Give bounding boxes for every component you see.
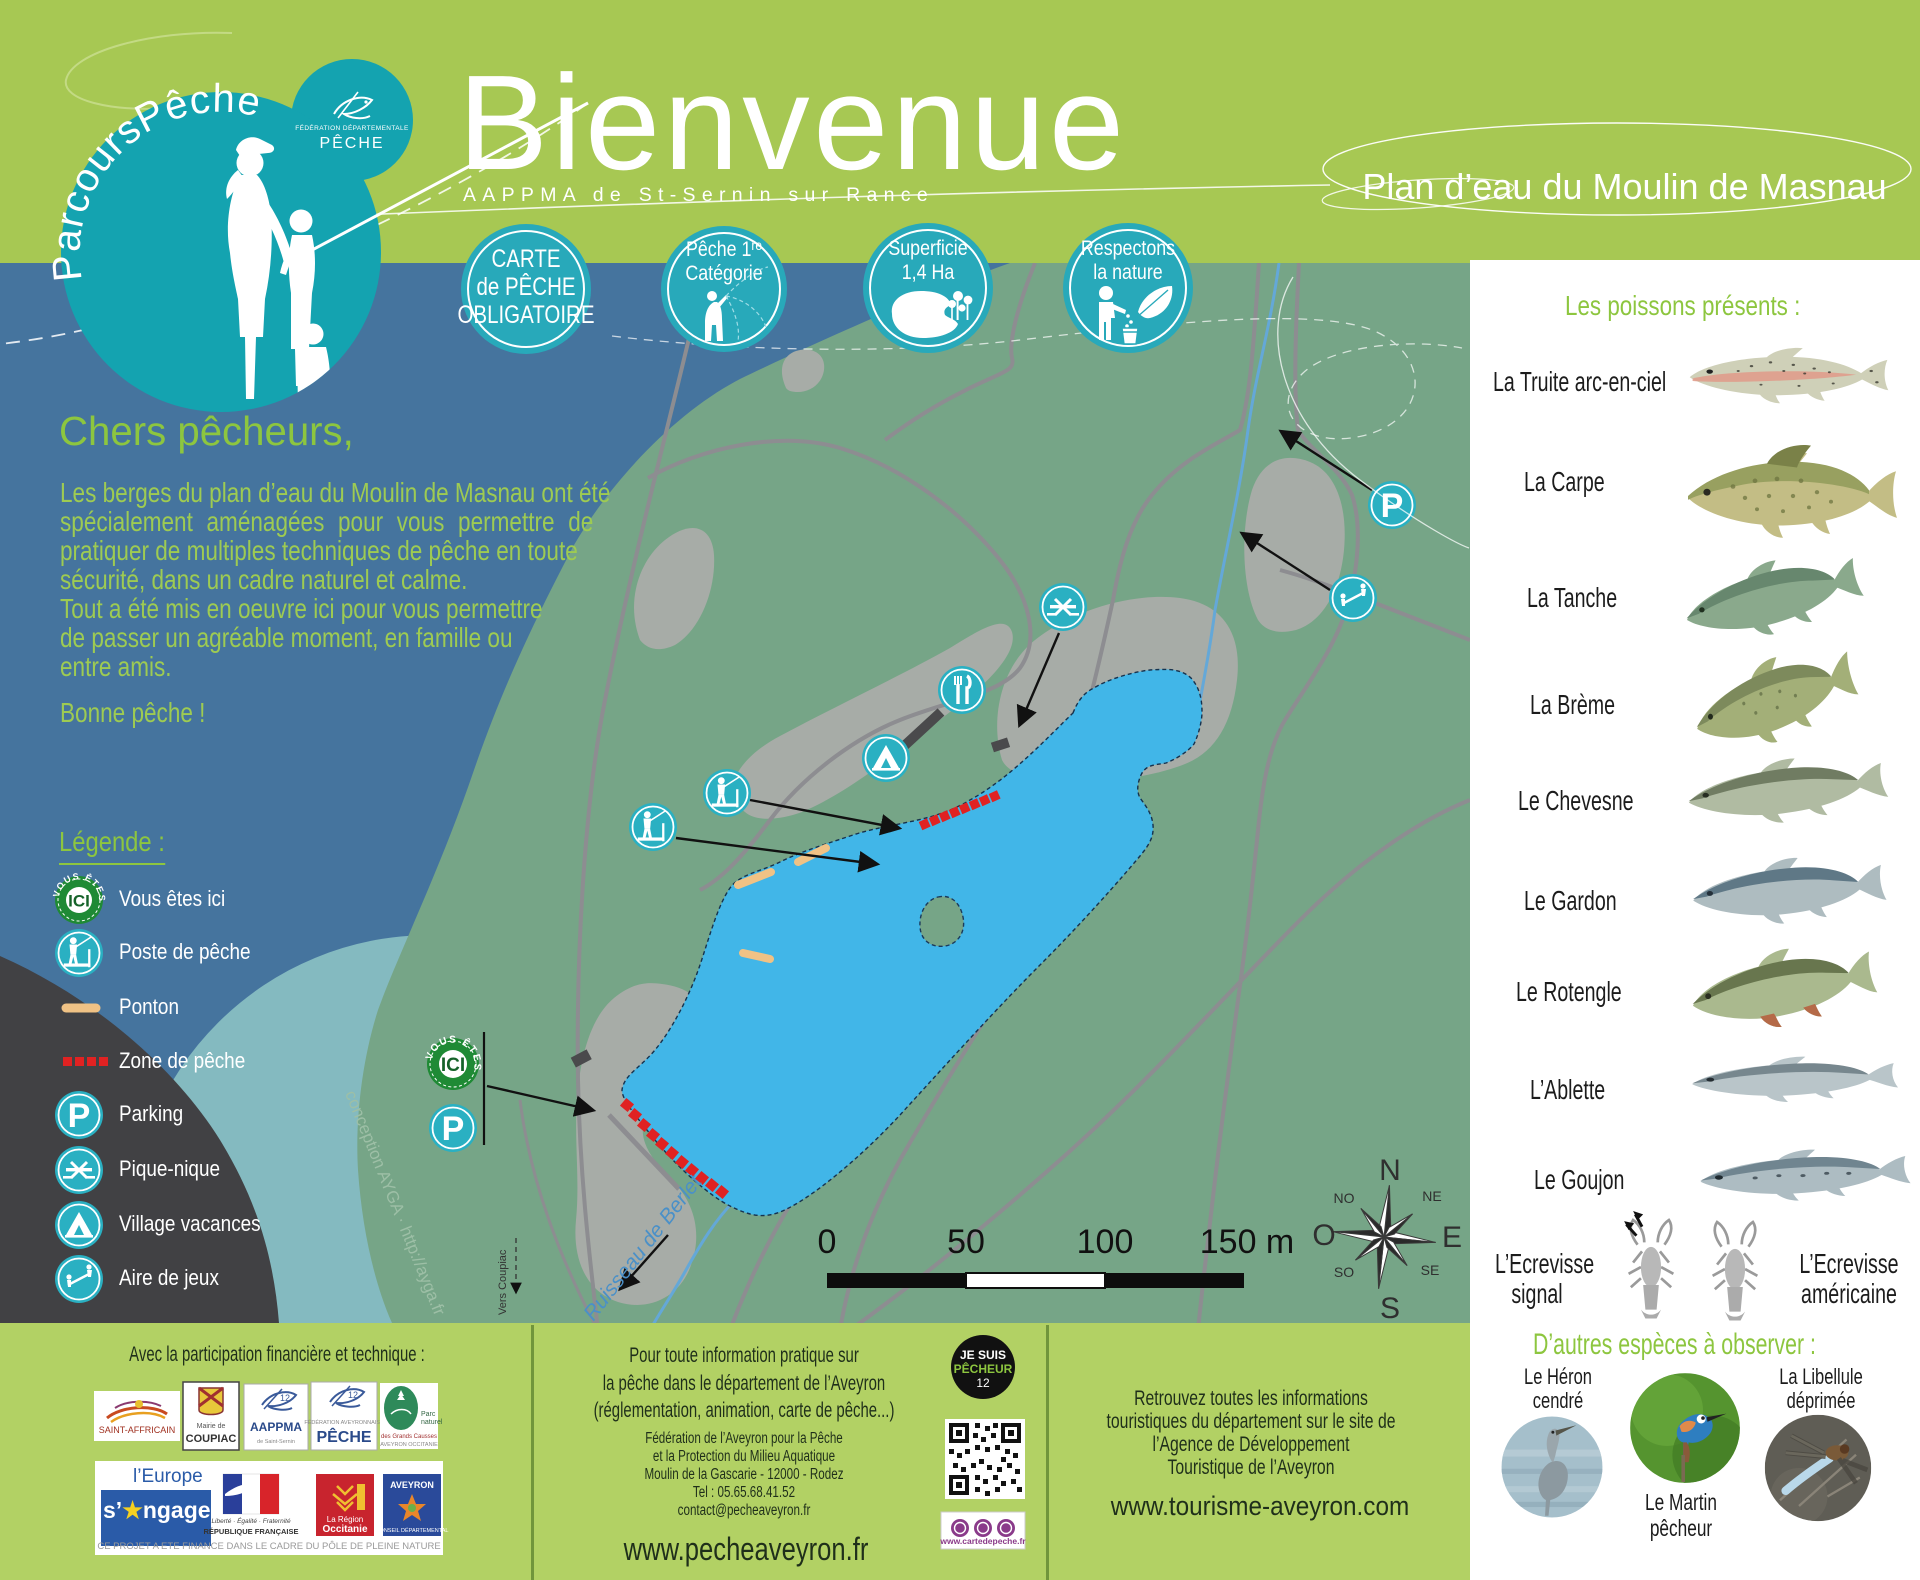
svg-text:PÊCHE: PÊCHE xyxy=(316,1427,371,1446)
svg-text:COUPIAC: COUPIAC xyxy=(186,1433,237,1445)
svg-text:AVEYRON: AVEYRON xyxy=(390,1480,434,1490)
svg-text:CE PROJET A ETE FINANCE DANS L: CE PROJET A ETE FINANCE DANS LE CADRE DU… xyxy=(97,1541,440,1552)
svg-text:de Saint-Sernin: de Saint-Sernin xyxy=(257,1439,295,1445)
svg-text:SAINT-AFFRICAIN: SAINT-AFFRICAIN xyxy=(99,1425,176,1435)
svg-text:RÉPUBLIQUE FRANÇAISE: RÉPUBLIQUE FRANÇAISE xyxy=(203,1527,298,1536)
svg-text:CONSEIL DÉPARTEMENTAL: CONSEIL DÉPARTEMENTAL xyxy=(376,1527,449,1534)
svg-text:AAPPMA: AAPPMA xyxy=(250,1420,302,1434)
svg-text:www.cartedepeche.fr: www.cartedepeche.fr xyxy=(939,1536,1026,1546)
svg-text:Mairie de: Mairie de xyxy=(197,1423,226,1430)
svg-text:Parc: Parc xyxy=(421,1411,436,1418)
svg-text:12: 12 xyxy=(348,1390,358,1400)
svg-text:l’Europe: l’Europe xyxy=(133,1466,203,1487)
svg-text:Occitanie: Occitanie xyxy=(322,1524,367,1535)
svg-text:FÉDÉRATION AVEYRONNAISE: FÉDÉRATION AVEYRONNAISE xyxy=(304,1419,384,1426)
svg-text:s’★ngage: s’★ngage xyxy=(103,1497,211,1523)
svg-text:AVEYRON OCCITANIE: AVEYRON OCCITANIE xyxy=(380,1442,438,1448)
svg-text:des Grands Causses: des Grands Causses xyxy=(381,1434,437,1440)
svg-text:12: 12 xyxy=(280,1393,290,1403)
svg-text:naturel: naturel xyxy=(421,1419,443,1426)
svg-text:La Région: La Région xyxy=(327,1515,363,1524)
svg-text:Liberté · Égalité · Fraternité: Liberté · Égalité · Fraternité xyxy=(211,1516,291,1525)
